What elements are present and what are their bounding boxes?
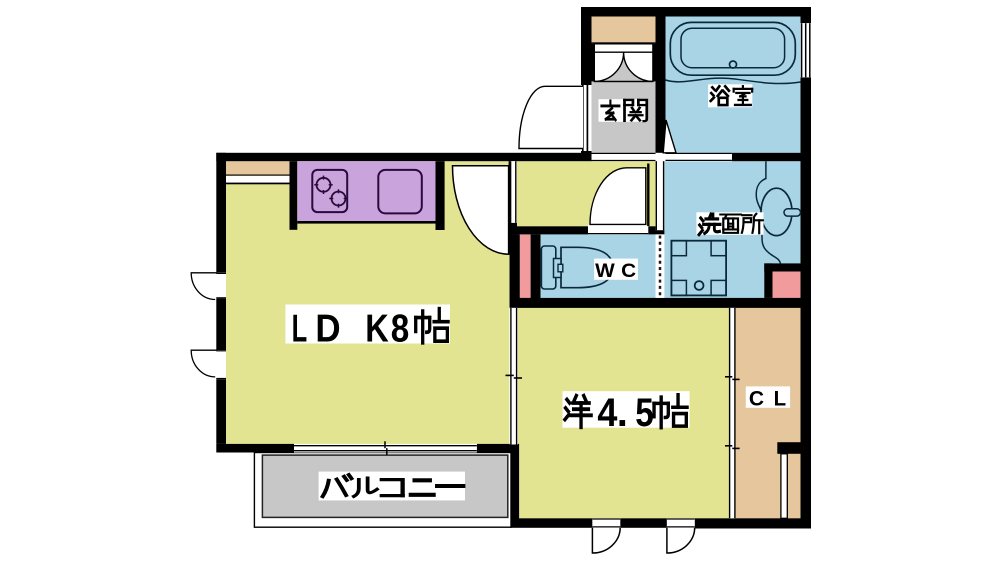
svg-text:C: C: [621, 260, 636, 282]
svg-text:D: D: [315, 307, 340, 350]
svg-text:.: .: [617, 391, 628, 435]
svg-text:L: L: [292, 307, 308, 350]
svg-text:C: C: [749, 387, 764, 411]
svg-text:W: W: [595, 260, 615, 282]
svg-text:4: 4: [597, 391, 618, 435]
svg-text:L: L: [774, 387, 787, 411]
svg-text:8: 8: [391, 307, 410, 350]
svg-text:K: K: [365, 307, 389, 350]
svg-text:5: 5: [635, 391, 654, 435]
